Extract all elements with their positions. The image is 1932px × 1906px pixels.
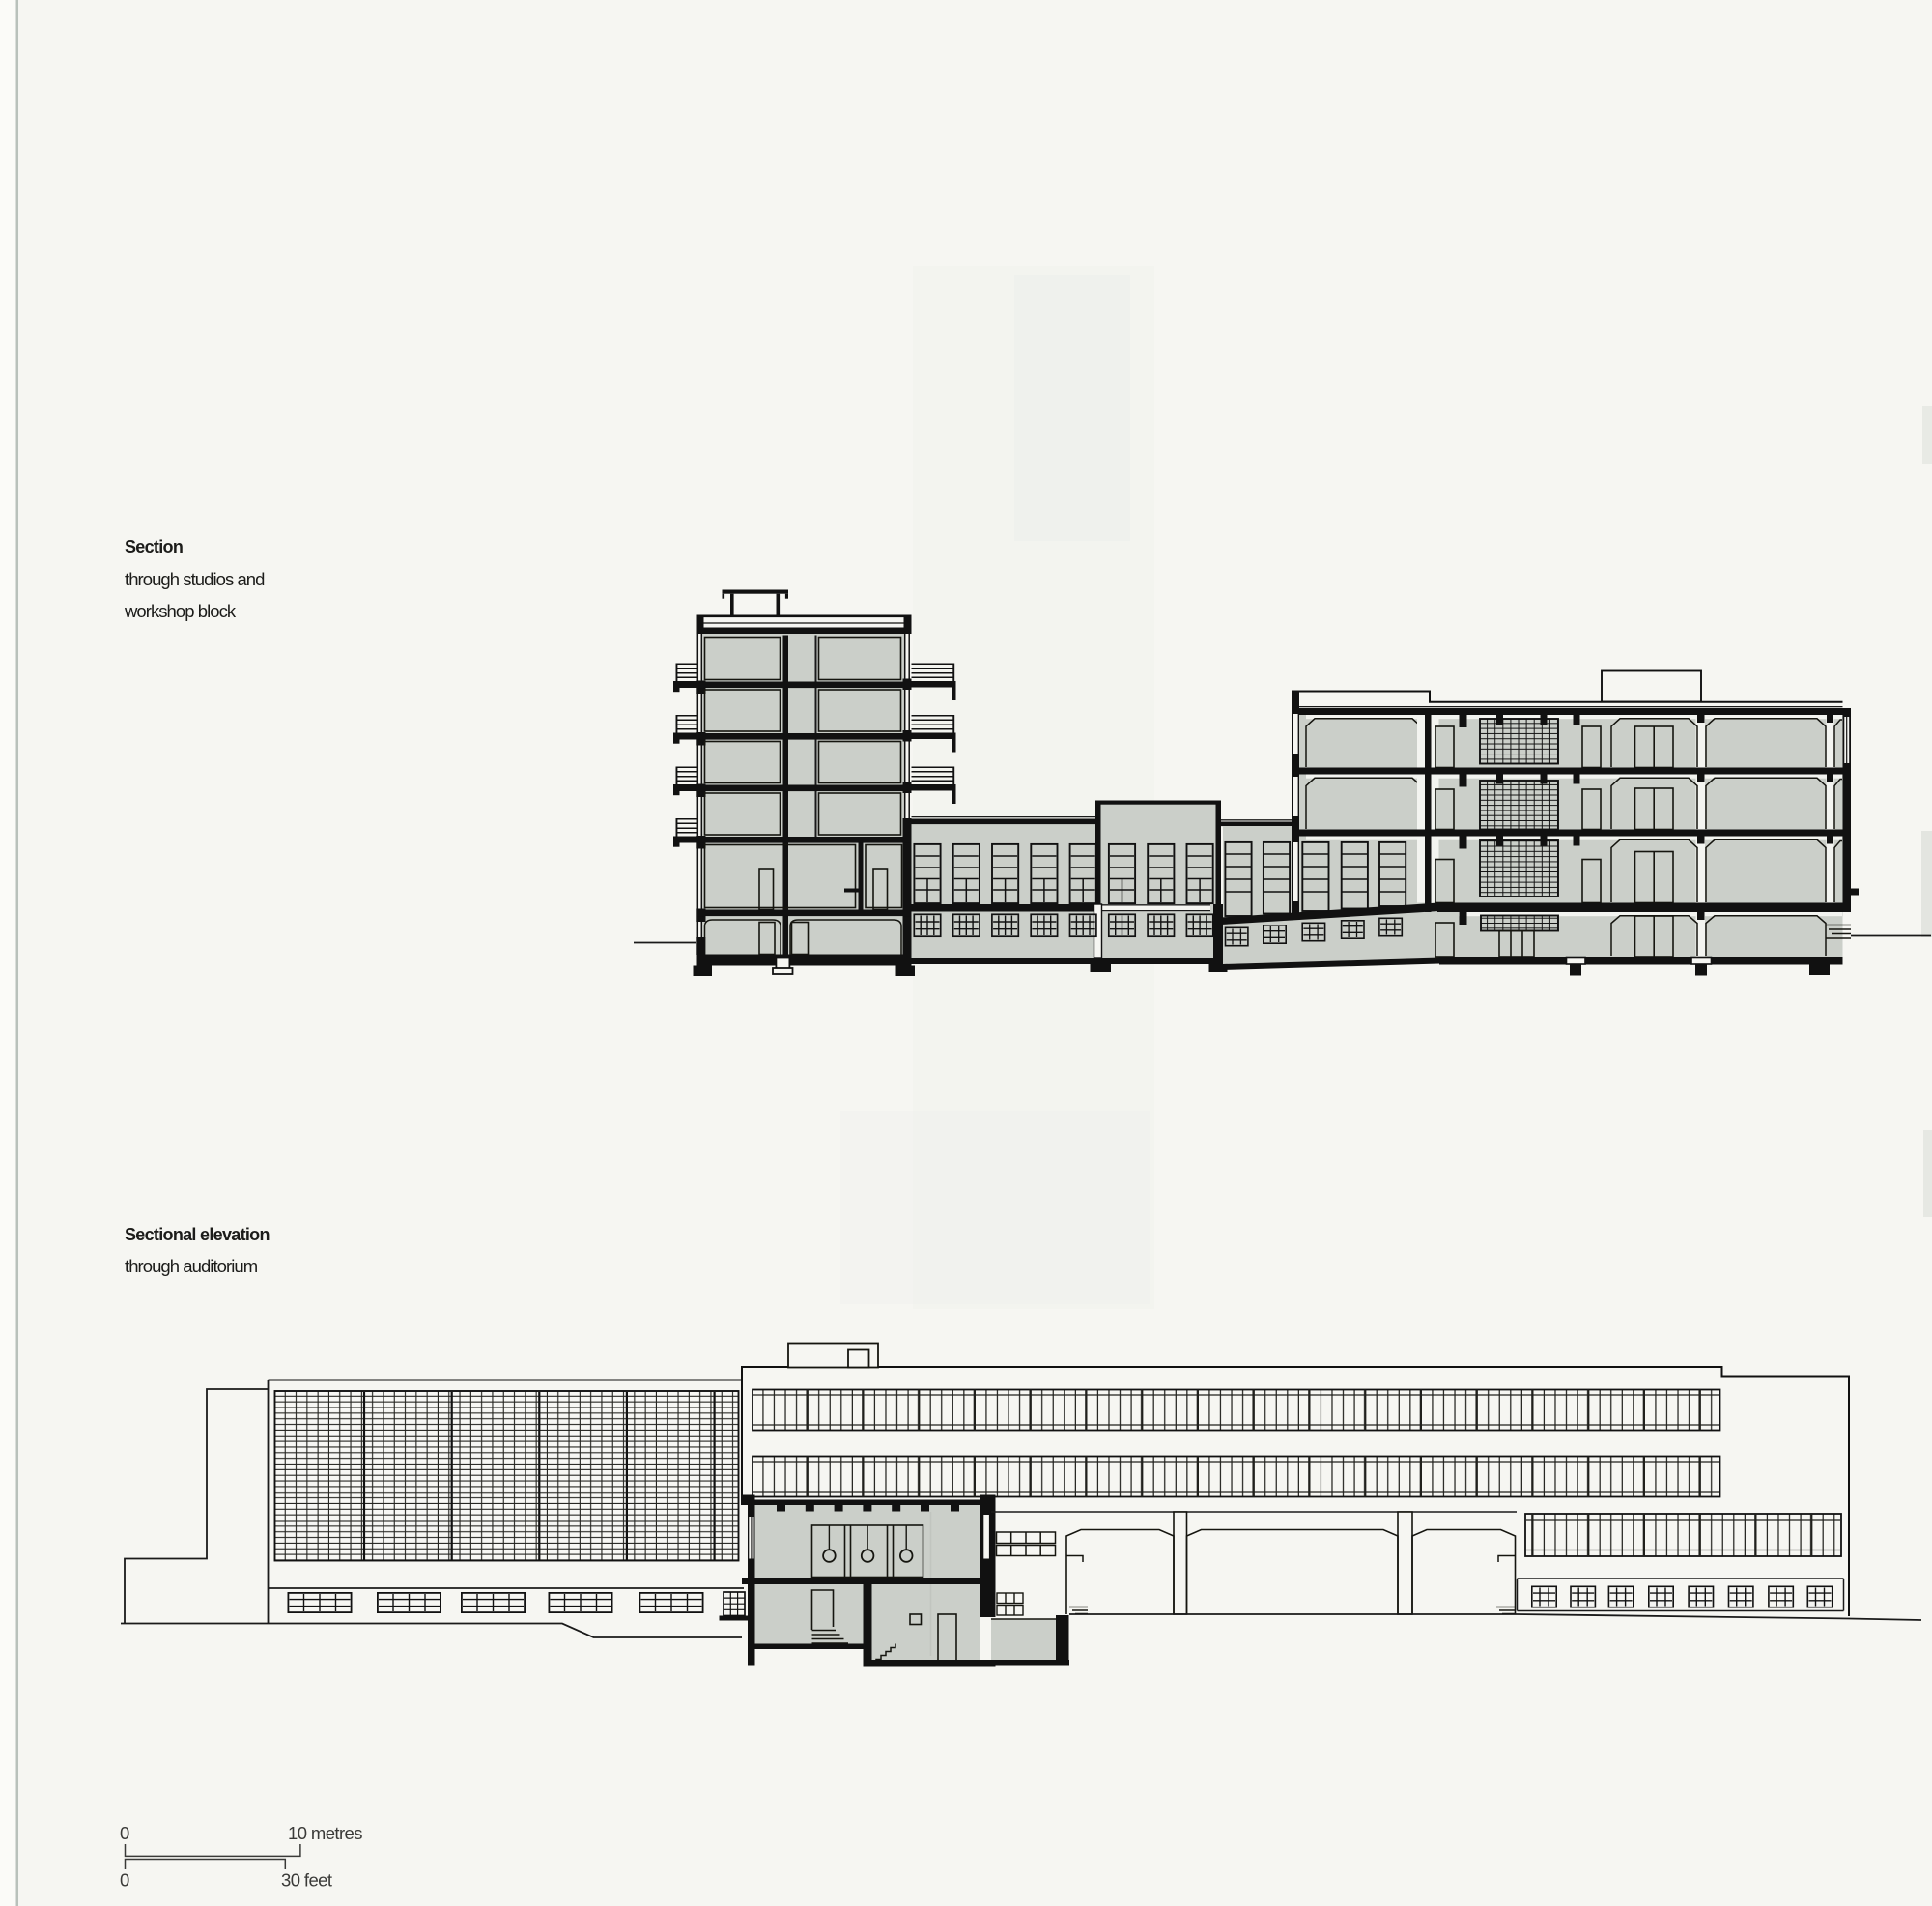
svg-text:Section: Section bbox=[125, 537, 183, 556]
svg-text:30 feet: 30 feet bbox=[281, 1870, 332, 1891]
svg-text:10 metres: 10 metres bbox=[288, 1823, 362, 1843]
svg-text:through auditorium: through auditorium bbox=[125, 1256, 258, 1276]
svg-text:0: 0 bbox=[120, 1870, 129, 1891]
svg-text:Sectional elevation: Sectional elevation bbox=[125, 1225, 270, 1244]
svg-text:through studios and: through studios and bbox=[125, 569, 265, 589]
svg-text:0: 0 bbox=[120, 1823, 129, 1843]
svg-text:workshop block: workshop block bbox=[124, 601, 237, 621]
